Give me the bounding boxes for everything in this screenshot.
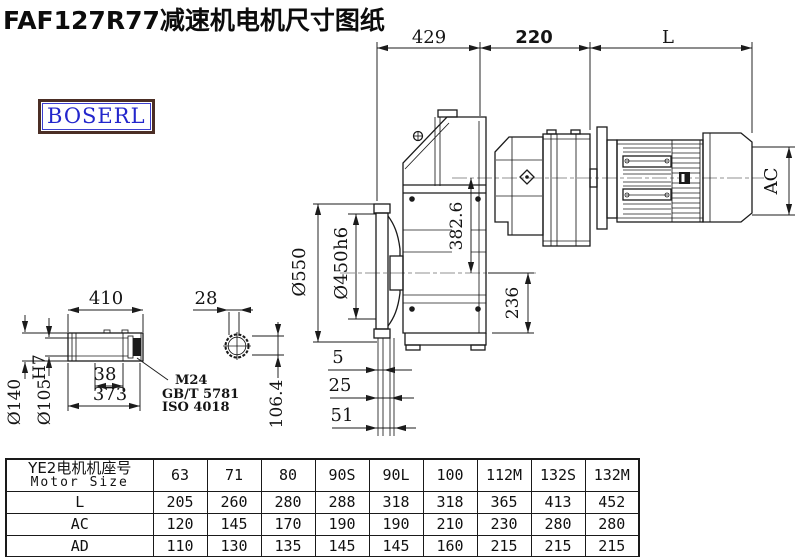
dim-d450: Ø450	[331, 250, 352, 299]
dim-382-group: 382.6	[447, 178, 471, 273]
dim-429: 429	[412, 27, 446, 48]
row-label-ad: AD	[6, 535, 153, 557]
dim-5-25-51-group: 5 25 51	[328, 347, 416, 428]
dim-25: 25	[329, 375, 352, 396]
dim-106: 106.4	[267, 380, 287, 429]
col-header-71: 71	[207, 459, 261, 491]
table-cell: 145	[207, 513, 261, 535]
table-cell: 230	[477, 513, 531, 535]
dim-373: 373	[93, 384, 127, 405]
table-cell: 110	[153, 535, 207, 557]
table-header-en: Motor Size	[7, 476, 153, 490]
dim-220: 220	[515, 27, 553, 48]
table-cell: 210	[423, 513, 477, 535]
dim-236-group: 236	[488, 273, 534, 333]
dim-d550: Ø550	[289, 247, 310, 296]
table-cell: 280	[531, 513, 585, 535]
dim-d140: Ø140	[5, 379, 25, 425]
table-cell: 160	[423, 535, 477, 557]
table-cell: 318	[369, 491, 423, 513]
table-row-ad: AD 110 130 135 145 145 160 215 215 215	[6, 535, 639, 557]
col-header-112m: 112M	[477, 459, 531, 491]
col-header-132s: 132S	[531, 459, 585, 491]
table-cell: 190	[369, 513, 423, 535]
dim-38: 38	[94, 364, 117, 385]
table-cell: 190	[315, 513, 369, 535]
dim-410: 410	[89, 288, 123, 309]
note-m24: M24	[175, 373, 207, 388]
table-cell: 260	[207, 491, 261, 513]
col-header-90l: 90L	[369, 459, 423, 491]
table-header-motor-size: YE2电机机座号 Motor Size	[6, 459, 153, 491]
table-row-l: L 205 260 280 288 318 318 365 413 452	[6, 491, 639, 513]
table-row-ac: AC 120 145 170 190 190 210 230 280 280	[6, 513, 639, 535]
table-cell: 120	[153, 513, 207, 535]
drawing-page: FAF127R77减速机电机尺寸图纸 BOSERL 429 220 L	[0, 0, 800, 557]
table-cell: 215	[531, 535, 585, 557]
table-cell: 145	[369, 535, 423, 557]
table-cell: 145	[315, 535, 369, 557]
dim-51: 51	[331, 405, 354, 426]
table-header-row: YE2电机机座号 Motor Size 63 71 80 90S 90L 100…	[6, 459, 639, 491]
table-cell: 413	[531, 491, 585, 513]
dim-d105-tolerance: H7	[30, 354, 50, 380]
dim-5: 5	[332, 347, 343, 368]
col-header-63: 63	[153, 459, 207, 491]
motor-size-table: YE2电机机座号 Motor Size 63 71 80 90S 90L 100…	[5, 458, 640, 557]
table-header-cn: YE2电机机座号	[7, 460, 153, 476]
dim-d450-tolerance: h6	[331, 227, 352, 250]
dim-28: 28	[195, 288, 218, 309]
table-cell: 280	[261, 491, 315, 513]
col-header-100: 100	[423, 459, 477, 491]
table-cell: 215	[585, 535, 639, 557]
table-cell: 280	[585, 513, 639, 535]
table-cell: 288	[315, 491, 369, 513]
row-label-ac: AC	[6, 513, 153, 535]
table-cell: 318	[423, 491, 477, 513]
adapter-view	[495, 130, 597, 246]
dim-ac: AC	[761, 168, 782, 196]
note-iso: ISO 4018	[162, 400, 230, 415]
dim-L: L	[662, 27, 674, 48]
col-header-132m: 132M	[585, 459, 639, 491]
table-cell: 170	[261, 513, 315, 535]
dim-ac-group: AC	[752, 147, 795, 215]
col-header-80: 80	[261, 459, 315, 491]
table-cell: 215	[477, 535, 531, 557]
gearbox-view	[403, 110, 486, 350]
dim-236: 236	[503, 287, 523, 319]
table-cell: 130	[207, 535, 261, 557]
table-cell: 365	[477, 491, 531, 513]
dim-d105: Ø105	[35, 379, 55, 425]
table-cell: 205	[153, 491, 207, 513]
dim-382: 382.6	[447, 202, 467, 251]
top-dimension-chain: 429 220 L	[377, 27, 752, 201]
table-cell: 135	[261, 535, 315, 557]
table-cell: 452	[585, 491, 639, 513]
dim-450-group: Ø450 h6	[331, 214, 376, 319]
row-label-l: L	[6, 491, 153, 513]
col-header-90s: 90S	[315, 459, 369, 491]
flange-view	[374, 204, 403, 436]
